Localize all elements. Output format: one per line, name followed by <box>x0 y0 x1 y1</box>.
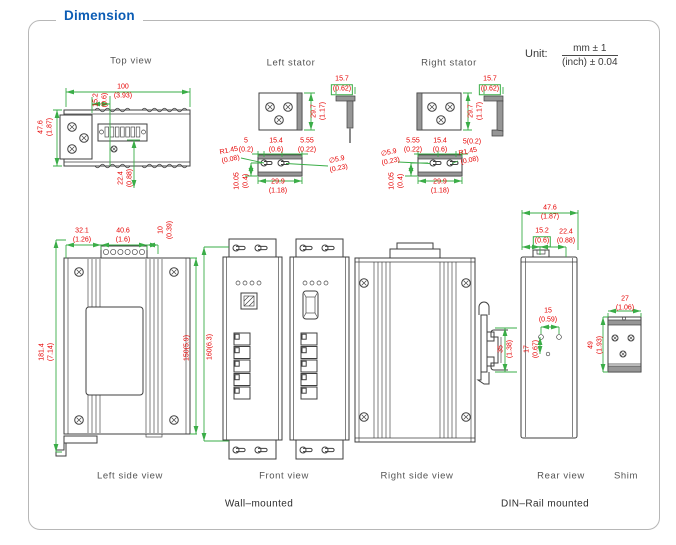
unit-prefix: Unit: <box>525 48 548 60</box>
unit-mm: mm ± 1 <box>562 43 618 56</box>
shim-label: Shim <box>614 471 638 482</box>
dim-shim-w: 27(1.06) <box>616 295 634 313</box>
dim-rstator-5: 5(0.2) <box>463 139 481 148</box>
front-view-label: Front view <box>259 471 309 482</box>
unit-inch: (inch) ± 0.04 <box>562 56 618 68</box>
dim-front-h: 160(6.3) <box>207 334 216 360</box>
right-stator-label: Right stator <box>421 58 477 69</box>
left-side-view-label: Left side view <box>97 471 163 482</box>
dim-top-offset: 15.2(0.6) <box>92 93 110 107</box>
right-stator-drawing <box>398 87 503 184</box>
dim-rstator-555: 5.55(0.22) <box>404 137 422 155</box>
dim-rear-152: 15.2(0.6) <box>533 227 551 247</box>
left-side-view-drawing <box>56 240 197 456</box>
dim-lstator-5: 5(0.2) <box>239 137 253 155</box>
rear-view-label: Rear view <box>537 471 585 482</box>
dim-rear-17: 17(0.67) <box>523 340 541 358</box>
dim-shim-h: 49(1.93) <box>587 336 605 354</box>
dim-lside-10: 10(0.39) <box>157 221 175 239</box>
shim-drawing <box>603 311 641 372</box>
dim-top-height: 47.6(1.87) <box>37 118 55 136</box>
dim-lside-total-h: 181.4(7.14) <box>38 343 56 361</box>
dim-lside-body-h: 150(5.9) <box>184 335 193 361</box>
dim-rstator-154: 15.4(0.6) <box>433 137 447 155</box>
dimension-page: Dimension <box>0 0 676 545</box>
dim-lstator-154: 15.4(0.6) <box>269 137 283 155</box>
dim-rstator-plate-h: 29.7(1.17) <box>467 102 485 120</box>
dim-top-width: 100(3.93) <box>114 83 132 101</box>
dim-lstator-dia59: ∅5.9(0.23) <box>327 155 349 176</box>
right-side-view-drawing <box>355 243 494 442</box>
dim-top-bottom: 22.4(0.88) <box>117 169 135 187</box>
dim-lstator-555: 5.55(0.22) <box>298 137 316 155</box>
dim-rstator-299: 29.9(1.18) <box>431 178 449 196</box>
dim-rstator-dia59: ∅5.9(0.23) <box>379 148 401 169</box>
dim-rear-224: 22.4(0.88) <box>557 228 575 246</box>
wall-mounted-caption: Wall–mounted <box>225 499 293 510</box>
dim-lside-321: 32.1(1.26) <box>73 227 91 245</box>
din-rail-mounted-caption: DIN–Rail mounted <box>501 499 589 510</box>
unit-fraction: mm ± 1 (inch) ± 0.04 <box>562 43 618 68</box>
front-view-drawing <box>204 239 349 459</box>
dim-lstator-1005: 10.05(0.4) <box>233 172 251 190</box>
top-view-label: Top view <box>110 56 152 67</box>
dim-rear-w: 47.6(1.87) <box>541 204 559 222</box>
dim-rstator-thk: 15.7(0.62) <box>479 75 501 95</box>
dim-rear-35: 35(1.38) <box>497 340 515 358</box>
dim-rstator-1005: 10.05(0.4) <box>388 172 406 190</box>
dim-lside-406: 40.6(1.6) <box>116 227 130 245</box>
right-side-view-label: Right side view <box>381 471 454 482</box>
dim-lstator-299: 29.9(1.18) <box>269 178 287 196</box>
dim-lstator-plate-h: 29.7(1.17) <box>310 102 328 120</box>
dim-lstator-thk: 15.7(0.62) <box>331 75 353 95</box>
dim-rear-15: 15(0.59) <box>539 307 557 325</box>
left-stator-label: Left stator <box>267 58 316 69</box>
